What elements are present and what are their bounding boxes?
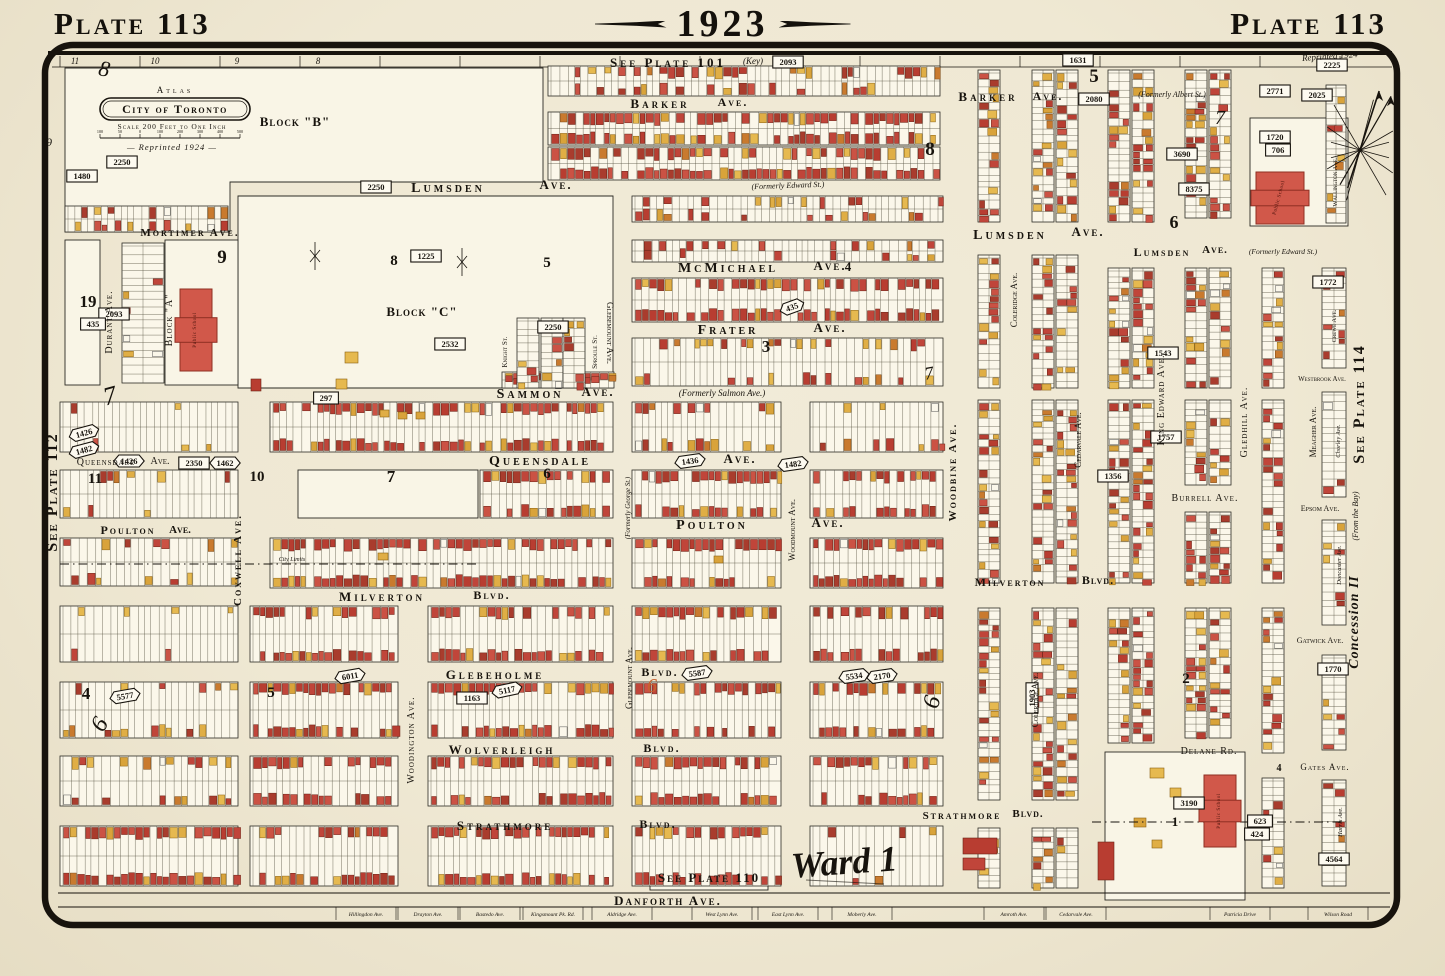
plan-number-badge: 2250: [107, 156, 137, 168]
lot-row: [810, 402, 945, 452]
lot-row: [810, 682, 943, 738]
lot-row: [250, 826, 398, 886]
plan-number-badge: 1631: [1063, 54, 1093, 66]
street-label: Blvd.: [639, 817, 676, 831]
plan-number-badge: 1462: [210, 457, 240, 469]
svg-text:Atlas: Atlas: [157, 85, 194, 95]
street-label: Block "B": [260, 114, 331, 129]
plan-number-badge: 1436: [674, 453, 706, 469]
block-number: 9: [46, 135, 52, 149]
plan-number-badge: 1482: [777, 456, 809, 472]
svg-text:0: 0: [139, 129, 141, 134]
svg-text:9: 9: [235, 56, 240, 66]
block-number: 8: [390, 253, 398, 269]
lot-row: [1262, 400, 1284, 583]
street-label: Ave.: [813, 258, 846, 273]
svg-text:Public School: Public School: [1216, 793, 1222, 829]
map-plate: Plate 113 1923 Plate 113 111098Hillingdo…: [0, 0, 1445, 976]
lot-row: [1185, 268, 1207, 388]
svg-text:500: 500: [237, 129, 243, 134]
street-label: Meagher Ave.: [1308, 407, 1318, 458]
street-label: Concession II: [1347, 575, 1362, 669]
svg-text:8: 8: [316, 56, 321, 66]
plan-number-badge: 1480: [67, 170, 97, 182]
plan-number-badge: 8375: [1179, 183, 1209, 195]
svg-text:100: 100: [157, 129, 163, 134]
street-label: Milverton: [339, 589, 425, 604]
plan-number-badge: 2093: [773, 56, 803, 68]
plan-number-badge: 1356: [1098, 470, 1128, 482]
street-label: Blvd.: [641, 665, 678, 679]
lot-row: [1032, 255, 1054, 390]
svg-text:City of Toronto: City of Toronto: [122, 102, 228, 116]
plan-number-badge: 2080: [1079, 93, 1109, 105]
svg-text:1225: 1225: [418, 251, 435, 261]
svg-text:706: 706: [1272, 145, 1285, 155]
plan-number-badge: 2532: [435, 338, 465, 350]
stub-street-label: Bastedo Ave.: [476, 912, 504, 918]
svg-text:1480: 1480: [74, 171, 91, 181]
plan-number-badge: 1225: [411, 250, 441, 262]
lot-row: [1209, 268, 1231, 388]
street-label: Gledhill Ave.: [1239, 387, 1250, 458]
street-label: Durant Ave.: [104, 290, 115, 353]
lot-row: [60, 826, 241, 886]
street-label: Mortimer Ave.: [140, 227, 239, 239]
street-label: Block "C": [386, 304, 457, 319]
street-label: Sammon: [497, 387, 564, 402]
svg-text:2225: 2225: [1324, 60, 1341, 70]
street-label: Barker: [630, 96, 689, 111]
street-label: Milverton: [975, 575, 1046, 589]
lot-row: [270, 402, 613, 452]
street-label: See Plate 114: [1351, 344, 1368, 464]
lot-row: [548, 112, 940, 145]
lot-row: [250, 756, 398, 806]
lot-row: [1322, 392, 1346, 497]
lot-row: [1209, 400, 1231, 485]
street-label: Lumsden: [973, 228, 1047, 243]
svg-text:2250: 2250: [368, 182, 385, 192]
lot-row: [1056, 608, 1078, 800]
lot-row: [428, 826, 613, 886]
stub-street-label: Amroth Ave.: [1000, 912, 1028, 918]
block-number: 2: [1182, 671, 1190, 687]
lot-row: [1056, 828, 1078, 888]
block-number: 9: [217, 247, 227, 268]
street-label: Glebeholme: [446, 667, 545, 682]
street-label: Poulton: [676, 518, 748, 533]
street-label: Woodmount Ave.: [787, 499, 797, 561]
plan-number-badge: 1770: [1318, 663, 1348, 675]
street-label: Woodington Ave.: [406, 696, 417, 783]
svg-text:2093: 2093: [780, 57, 797, 67]
svg-text:435: 435: [87, 319, 100, 329]
stub-street-label: Patricia Drive: [1223, 912, 1256, 918]
street-label: Blvd.: [473, 588, 510, 602]
lot-row: [810, 756, 943, 806]
plan-number-badge: 2025: [1302, 89, 1332, 101]
street-label: Westbrook Ave.: [1298, 375, 1346, 383]
block-number: 4: [1277, 763, 1282, 774]
lot-row: [1262, 608, 1284, 753]
plan-number-badge: 1720: [1260, 131, 1290, 143]
lot-row: [1185, 400, 1207, 485]
lot-row: [1108, 268, 1130, 389]
svg-text:1462: 1462: [217, 458, 234, 468]
block-number: 1: [1172, 814, 1179, 829]
svg-text:Scale 200 Feet to One Inch: Scale 200 Feet to One Inch: [118, 122, 227, 131]
stub-street-label: East Lynn Ave.: [771, 912, 805, 918]
street-label: Blvd.: [643, 741, 680, 755]
plan-number-badge: 2771: [1260, 85, 1290, 97]
block-number: 4: [82, 684, 91, 703]
street-label: Glebemount Ave.: [624, 647, 634, 709]
street-label: (Formerly Edward St.): [751, 180, 824, 192]
lot-row: [632, 338, 943, 386]
street-label: Cedarvale Ave.: [1073, 412, 1083, 468]
block-number: 7: [387, 467, 396, 486]
svg-text:1720: 1720: [1267, 132, 1284, 142]
lot-row: [548, 66, 940, 96]
lot-row: [60, 538, 238, 586]
stub-street-label: Cedarvale Ave.: [1059, 912, 1093, 918]
street-label: Coleridge Ave.: [1030, 673, 1040, 728]
svg-text:2250: 2250: [114, 157, 131, 167]
block-number: 10: [250, 469, 265, 485]
svg-text:3690: 3690: [1174, 149, 1191, 159]
map-canvas: 111098Hillingdon Ave.Drayton Ave.Bastedo…: [0, 0, 1445, 976]
lot-row: [1209, 512, 1231, 583]
lot-row: [632, 606, 781, 662]
svg-text:300: 300: [197, 129, 203, 134]
block-number: 5: [543, 255, 551, 271]
plan-number-badge: 3690: [1167, 148, 1197, 160]
lot-row: [270, 538, 613, 588]
street-label: Ave.: [1033, 89, 1064, 103]
plan-number-badge: 2350: [179, 457, 209, 469]
street-label: Ave.: [718, 95, 749, 109]
svg-text:297: 297: [320, 393, 334, 403]
svg-text:424: 424: [1251, 829, 1265, 839]
svg-text:1631: 1631: [1070, 55, 1087, 65]
street-label: Burrell Ave.: [1172, 493, 1239, 504]
lot-row: [1108, 608, 1130, 743]
street-label: See Plate 101: [610, 55, 726, 70]
block-number: 5: [267, 685, 275, 701]
street-label: Barker: [958, 89, 1017, 104]
street-label: (Key): [743, 56, 763, 66]
lot-row: [517, 318, 539, 389]
svg-text:2532: 2532: [442, 339, 459, 349]
street-label: See Plate 112: [44, 432, 61, 552]
svg-text:2080: 2080: [1086, 94, 1103, 104]
svg-text:4564: 4564: [1326, 854, 1344, 864]
lot-row: [978, 255, 1000, 388]
street-label: Blvd.: [1012, 808, 1043, 820]
street-label: (Formerly George St.): [624, 476, 632, 539]
street-label: King Edward Ave.: [1156, 355, 1167, 446]
block-number: 5: [1089, 66, 1099, 87]
plan-number-badge: 1163: [457, 692, 487, 704]
svg-text:1770: 1770: [1325, 664, 1342, 674]
lot-row: [1108, 70, 1130, 222]
lot-row: [548, 147, 940, 180]
lot-row: [1209, 70, 1231, 219]
street-label: Queensdale: [489, 454, 591, 469]
svg-text:Public School: Public School: [192, 312, 198, 348]
street-label: Ave.: [811, 515, 844, 530]
lot-row: [60, 606, 238, 662]
street-label: City Limits: [279, 557, 306, 563]
lot-row: [60, 470, 238, 518]
street-label: Wolverleigh: [449, 742, 556, 757]
lot-row: [1108, 400, 1130, 585]
street-label: Queensdale: [77, 457, 135, 468]
svg-text:2250: 2250: [545, 322, 562, 332]
street-label: Lumsden: [1134, 245, 1191, 259]
block-number: 8: [925, 139, 935, 160]
street-label: Delane Rd.: [1181, 746, 1238, 757]
street-label: Ave.: [581, 384, 614, 399]
plan-number-badge: 1772: [1313, 276, 1343, 288]
plan-number-badge: 435: [81, 318, 106, 330]
street-label: Epsom Ave.: [1301, 504, 1340, 513]
street-label: Strathmore: [457, 818, 554, 833]
street-label: Poulton: [100, 523, 155, 537]
lot-row: [1132, 268, 1154, 388]
svg-text:200: 200: [177, 129, 183, 134]
street-label: Frater: [698, 323, 759, 338]
street-label: Sproule St.: [591, 335, 599, 369]
svg-text:— Reprinted 1924 —: — Reprinted 1924 —: [126, 142, 217, 152]
street-label: Blvd.: [1082, 573, 1114, 587]
stub-street-label: Moberly Ave.: [846, 912, 876, 918]
svg-text:400: 400: [217, 129, 223, 134]
lot-row: [1032, 400, 1054, 583]
lot-row: [428, 606, 613, 662]
public-school-building: Public School: [1199, 775, 1241, 847]
svg-text:50: 50: [118, 129, 122, 134]
public-school-building: Public School: [1251, 172, 1309, 224]
ward-label: Ward 1: [790, 838, 899, 885]
lot-row: [1209, 608, 1231, 738]
street-label: Gates Ave.: [1300, 762, 1349, 772]
block-number: 19: [80, 292, 97, 311]
lot-row: [810, 470, 943, 518]
lot-row: [632, 756, 781, 806]
street-label: (Formerly Salmon Ave.): [679, 388, 766, 398]
svg-text:2771: 2771: [1267, 86, 1284, 96]
street-label: McMichael: [678, 261, 778, 276]
lot-row: [1056, 255, 1078, 388]
svg-text:2025: 2025: [1309, 90, 1326, 100]
svg-text:1356: 1356: [1105, 471, 1122, 481]
street-label: Woodbine Ave.: [947, 423, 959, 522]
lot-row: [1132, 400, 1154, 585]
lot-row: [810, 606, 943, 662]
svg-text:11: 11: [71, 56, 79, 66]
svg-text:10: 10: [151, 56, 161, 66]
svg-text:3190: 3190: [1181, 798, 1198, 808]
stub-street-label: Kingsmount Pk. Rd.: [530, 912, 575, 918]
street-label: Knight St.: [501, 336, 509, 367]
lot-row: [978, 608, 1000, 800]
street-label: Strathmore: [923, 810, 1002, 822]
plan-number-badge: 2250: [361, 181, 391, 193]
stub-street-label: Aldridge Ave.: [606, 912, 637, 918]
lot-row: [632, 470, 782, 518]
street-label: Ave.: [1202, 244, 1228, 256]
stub-street-label: Hillingdon Ave.: [348, 912, 383, 918]
street-label: (Formerly Albert St.): [1138, 90, 1206, 99]
lot-row: [632, 240, 943, 262]
plan-number-badge: 4564: [1319, 853, 1349, 865]
svg-text:8375: 8375: [1186, 184, 1203, 194]
street-label: Block "A": [164, 294, 175, 347]
lot-row: [978, 400, 1000, 583]
public-school-building: Public School: [175, 289, 217, 371]
street-label: Coxwell Ave.: [232, 514, 244, 606]
plan-number-badge: 2250: [538, 321, 568, 333]
stub-street-label: Drayton Ave.: [413, 912, 443, 918]
svg-text:1163: 1163: [464, 693, 481, 703]
street-label: Crewe Ave.: [1331, 309, 1338, 342]
street-label: See Plate 110: [658, 870, 760, 885]
lot-row: [632, 196, 943, 222]
street-label: Lumsden: [411, 181, 485, 196]
lot-row: [810, 538, 943, 588]
street-label: Ave.: [813, 320, 846, 335]
street-label: Danforth Ave.: [614, 893, 722, 908]
lot-row: [428, 756, 613, 806]
lot-row: [1262, 268, 1284, 388]
lot-row: [1032, 828, 1054, 890]
stub-street-label: Wilson Road: [1324, 912, 1352, 918]
svg-text:100: 100: [97, 129, 103, 134]
lot-row: [250, 606, 398, 662]
street-label: Ave.: [723, 451, 756, 466]
svg-text:2350: 2350: [186, 458, 203, 468]
plan-number-badge: 297: [314, 392, 339, 404]
plan-number-badge: 3190: [1174, 797, 1204, 809]
street-label: Ave.: [150, 456, 169, 467]
plan-number-badge: 5587: [681, 665, 713, 681]
street-label: Glebemount Ave.: [605, 302, 615, 364]
street-label: Chorley Ave.: [1335, 424, 1342, 458]
stub-street-label: West Lynn Ave.: [706, 912, 739, 918]
plan-number-badge: 623: [1248, 815, 1273, 827]
street-label: Ave.: [1071, 224, 1104, 239]
lot-row: [632, 538, 782, 588]
lot-row: [428, 682, 614, 738]
street-label: Doncaster Ave.: [1336, 545, 1343, 586]
street-label: Harris Ave.: [1337, 807, 1344, 838]
svg-text:1772: 1772: [1320, 277, 1337, 287]
block-number: 3: [762, 337, 771, 356]
block-number: 11: [88, 471, 102, 487]
street-label: Ave.: [169, 524, 191, 536]
lot-row: [60, 756, 238, 806]
block-number: 6: [1170, 212, 1179, 232]
street-label: (Formerly Edward St.): [1249, 247, 1318, 256]
lot-row: [1185, 512, 1207, 586]
lot-row: [632, 402, 781, 452]
plan-number-badge: 706: [1266, 144, 1291, 156]
street-label: Ave.: [539, 177, 572, 192]
street-label: Gatwick Ave.: [1297, 636, 1343, 645]
block-number: 7: [1215, 107, 1226, 129]
plan-number-badge: 424: [1245, 828, 1270, 840]
lot-row: [1132, 608, 1154, 743]
street-label: (From the Bay): [1351, 491, 1360, 540]
svg-text:623: 623: [1254, 816, 1267, 826]
street-label: Coleridge Ave.: [1009, 273, 1019, 328]
